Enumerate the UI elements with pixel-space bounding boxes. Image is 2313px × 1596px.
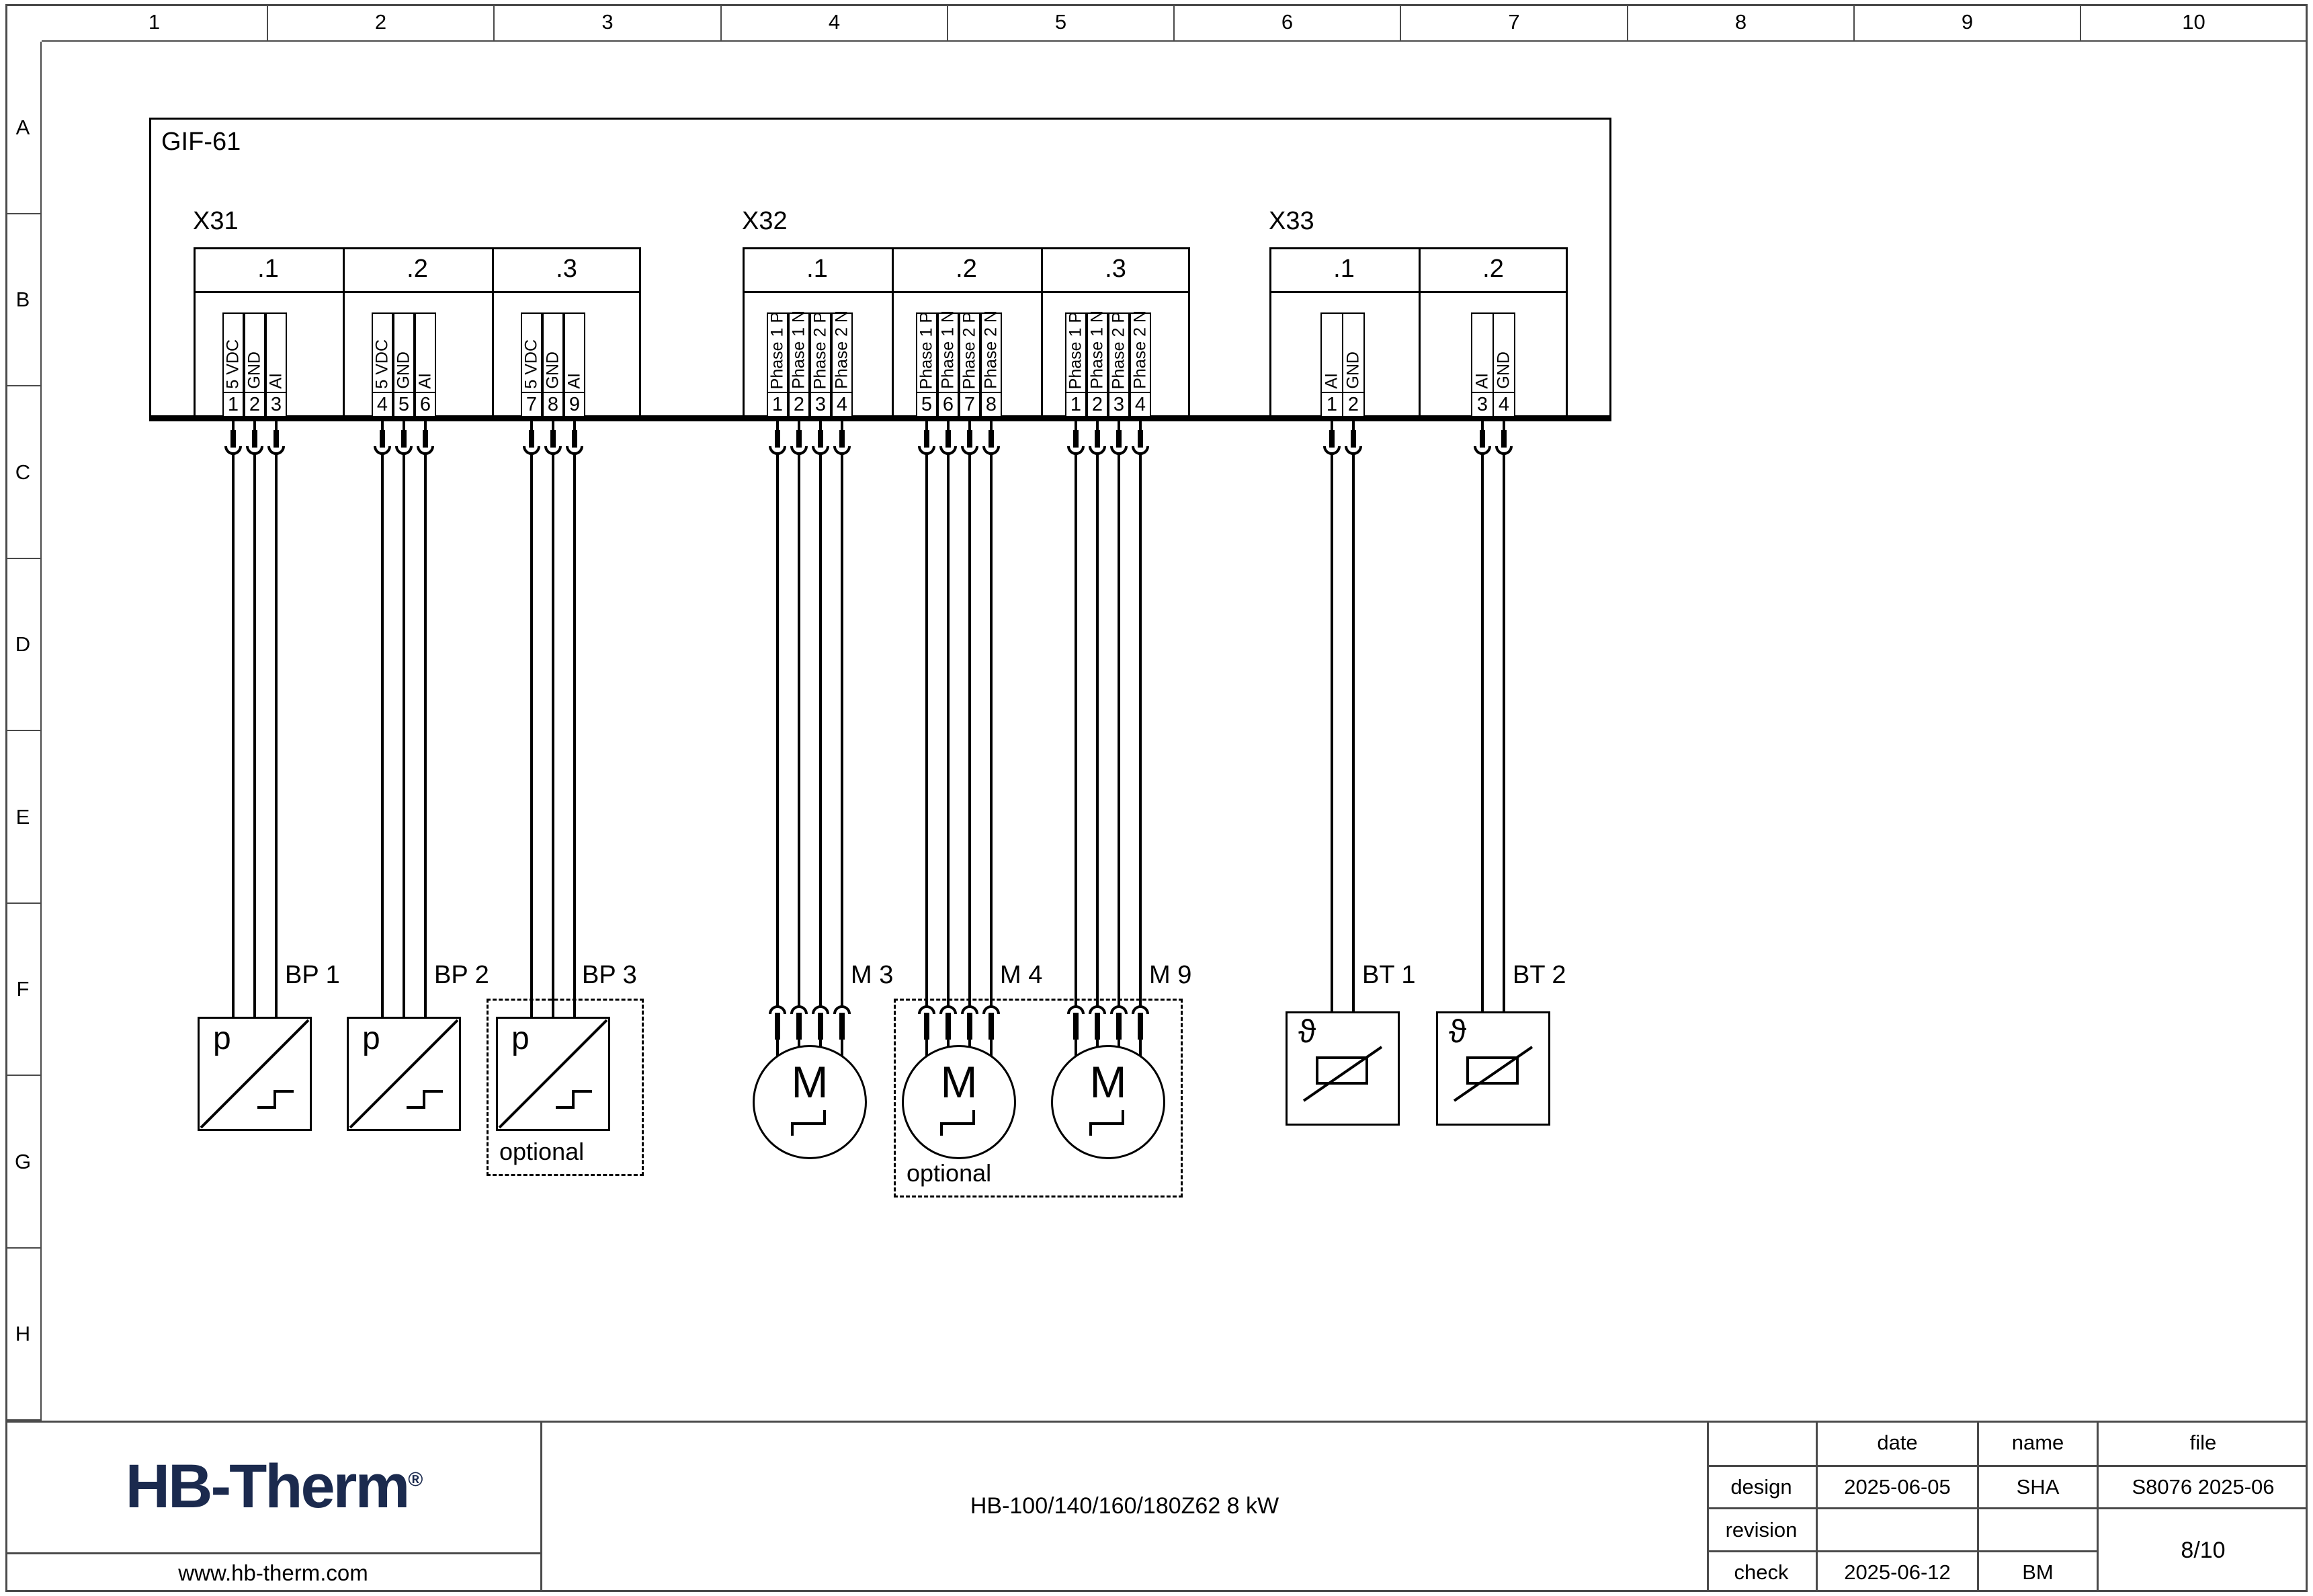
design-date: 2025-06-05 bbox=[1818, 1467, 1977, 1507]
hb-therm-logo: HB-Therm® bbox=[126, 1452, 421, 1522]
pressure-symbol-letter: p bbox=[362, 1020, 380, 1057]
x32-wires bbox=[770, 421, 1148, 1056]
revision-date bbox=[1818, 1509, 1977, 1550]
motor-step-symbol bbox=[783, 1106, 837, 1137]
logo-cell: HB-Therm® bbox=[5, 1421, 541, 1552]
pressure-sensor-bp2: p bbox=[347, 1017, 461, 1131]
page-number: 8/10 bbox=[2099, 1509, 2308, 1592]
theta-symbol-letter: ϑ bbox=[1449, 1013, 1466, 1050]
motor-symbol-letter: M bbox=[755, 1056, 865, 1107]
component-label-m9: M 9 bbox=[1149, 961, 1191, 990]
revision-row-label: revision bbox=[1707, 1509, 1816, 1550]
optional-box-m4-m9: optional bbox=[894, 999, 1183, 1198]
design-row-label: design bbox=[1707, 1467, 1816, 1507]
temperature-sensor-bt2: ϑ bbox=[1436, 1011, 1550, 1126]
pressure-sensor-bp1: p bbox=[198, 1017, 312, 1131]
revision-name bbox=[1979, 1509, 2097, 1550]
schematic-page: { "ruler": { "cols": ["1","2","3","4","5… bbox=[0, 0, 2313, 1596]
component-label-bp3: BP 3 bbox=[582, 961, 637, 990]
check-row-label: check bbox=[1707, 1552, 1816, 1592]
motor-m3: M bbox=[753, 1045, 867, 1159]
check-name: BM bbox=[1979, 1552, 2097, 1592]
check-date: 2025-06-12 bbox=[1818, 1552, 1977, 1592]
component-label-bp2: BP 2 bbox=[434, 961, 489, 990]
design-file: S8076 2025-06 bbox=[2099, 1467, 2308, 1507]
table-header-name: name bbox=[1979, 1421, 2097, 1465]
registered-trademark-icon: ® bbox=[408, 1468, 421, 1490]
optional-box-bp3: optional bbox=[487, 999, 644, 1176]
design-name: SHA bbox=[1979, 1467, 2097, 1507]
optional-label: optional bbox=[907, 1159, 991, 1187]
pressure-symbol-letter: p bbox=[213, 1020, 231, 1057]
table-header-file: file bbox=[2099, 1421, 2308, 1465]
x31-wires bbox=[226, 421, 582, 1017]
component-label-bt2: BT 2 bbox=[1513, 961, 1566, 990]
theta-symbol-letter: ϑ bbox=[1298, 1013, 1316, 1050]
website-text: www.hb-therm.com bbox=[5, 1554, 541, 1592]
optional-label: optional bbox=[499, 1138, 584, 1166]
component-label-bp1: BP 1 bbox=[285, 961, 340, 990]
component-label-m4: M 4 bbox=[1000, 961, 1042, 990]
x33-wires bbox=[1324, 421, 1511, 1011]
table-header-date: date bbox=[1818, 1421, 1977, 1465]
drawing-title: HB-100/140/160/180Z62 8 kW bbox=[542, 1421, 1707, 1592]
component-label-bt1: BT 1 bbox=[1362, 961, 1416, 990]
wiring-layer bbox=[0, 0, 2313, 1596]
temperature-sensor-bt1: ϑ bbox=[1286, 1011, 1400, 1126]
component-label-m3: M 3 bbox=[851, 961, 893, 990]
